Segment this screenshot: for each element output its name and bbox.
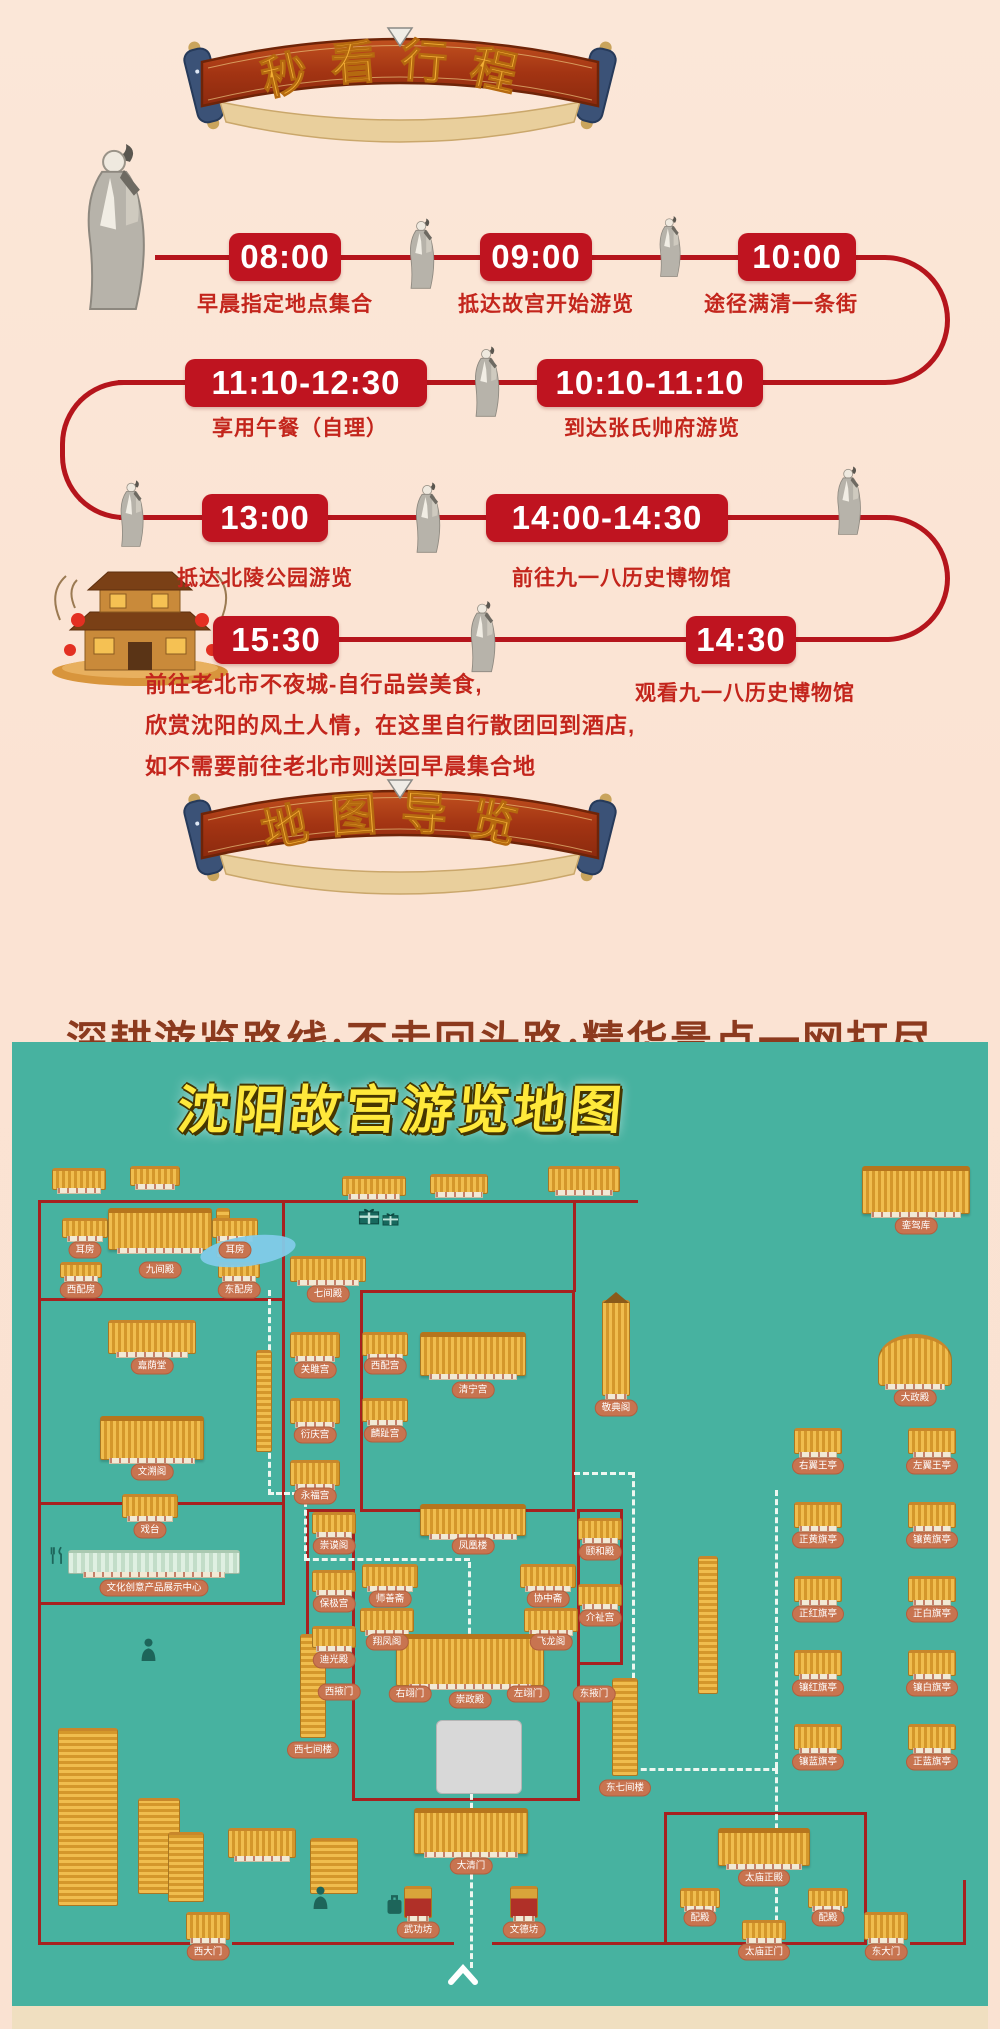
map-building: [362, 1332, 408, 1356]
palace-wall: [38, 1200, 41, 1945]
timeline-time-pill: 08:00: [229, 233, 341, 281]
map-building-label: 麟趾宫: [364, 1426, 407, 1443]
map-building-label: 正蓝旗亭: [906, 1754, 958, 1771]
map-building-label: 飞龙阁: [530, 1634, 573, 1651]
map-building: [908, 1650, 956, 1676]
map-building: [420, 1332, 526, 1376]
map-building-label: 武功坊: [397, 1922, 440, 1939]
timeline-time-pill: 15:30: [213, 616, 339, 664]
map-building-label: 永福宫: [294, 1488, 337, 1505]
palace-wall: [577, 1662, 623, 1665]
map-building: [718, 1828, 810, 1866]
map-building: [794, 1428, 842, 1454]
map-building: [602, 1300, 630, 1396]
timeline-stop-desc: 途径满清一条街: [704, 288, 858, 318]
map-building-label: 镶红旗亭: [792, 1680, 844, 1697]
gift-icon: [382, 1211, 399, 1226]
map-building: [524, 1608, 578, 1632]
map-building-label: 西配宫: [364, 1358, 407, 1375]
timeline-time-pill: 10:00: [738, 233, 856, 281]
map-building-decor: [436, 1720, 522, 1794]
itinerary-banner: 秒看行程: [150, 20, 650, 160]
timeline-stop-desc: 观看九一八历史博物馆: [635, 677, 855, 707]
palace-map: 沈阳故宫游览地图 耳房九间殿耳房西配房东配房嘉荫堂文溯阁戏台文化创意产品展示中心…: [12, 1042, 988, 2006]
final-stop-note: 前往老北市不夜城-自行品尝美食, 欣赏沈阳的风土人情，在这里自行散团回到酒店, …: [145, 664, 635, 787]
map-building-label: 翔凤阁: [366, 1634, 409, 1651]
map-building-label: 镶蓝旗亭: [792, 1754, 844, 1771]
map-building: [742, 1920, 786, 1940]
bottom-strip: [12, 2006, 988, 2029]
palace-wall: [38, 1602, 285, 1605]
map-building: [100, 1416, 204, 1460]
map-building: [360, 1608, 414, 1632]
tour-route-dashed-path: [574, 1472, 634, 1475]
map-building: [864, 1912, 908, 1940]
map-building: [794, 1650, 842, 1676]
map-building-decor: [548, 1166, 620, 1192]
map-building: [290, 1332, 340, 1358]
palace-wall: [963, 1880, 966, 1945]
map-building: [510, 1886, 538, 1918]
map-building: [62, 1218, 108, 1238]
timeline-time-pill: 09:00: [480, 233, 592, 281]
person-icon: [312, 1886, 329, 1909]
timeline-time-pill: 13:00: [202, 494, 328, 542]
map-building-label: 凤凰楼: [452, 1538, 495, 1555]
map-building-label: 右翼王亭: [792, 1458, 844, 1475]
tour-route-dashed-path: [632, 1768, 778, 1771]
map-building-label: 衍庆宫: [294, 1427, 337, 1444]
map-building-label: 七间殿: [307, 1286, 350, 1303]
timeline-stop-desc: 抵达故宫开始游览: [458, 288, 634, 318]
map-building-label: 戏台: [133, 1522, 166, 1539]
map-building: [908, 1502, 956, 1528]
map-building-label: 正黄旗亭: [792, 1532, 844, 1549]
timeline-stop-desc: 享用午餐（自理）: [212, 412, 388, 442]
map-building-label: 右翊门: [389, 1686, 432, 1703]
map-building-label: 东七间楼: [599, 1780, 651, 1797]
map-building-label: 大清门: [450, 1858, 493, 1875]
map-building-label: 配殿: [683, 1910, 716, 1927]
map-building-label: 清宁宫: [452, 1382, 495, 1399]
map-building-label: 西大门: [187, 1944, 230, 1961]
map-building: [396, 1634, 544, 1686]
tour-route-dashed-path: [304, 1558, 470, 1561]
map-building-label: 镶白旗亭: [906, 1680, 958, 1697]
map-building-label: 崇政殿: [449, 1692, 492, 1709]
scholar-figure-icon: [653, 214, 687, 278]
map-building-label: 崇谟阁: [313, 1538, 356, 1555]
luggage-icon: [386, 1894, 403, 1915]
map-building-label: 太庙正门: [738, 1944, 790, 1961]
timeline-curve-right2: [856, 515, 950, 642]
scholar-figure-icon: [468, 344, 506, 418]
map-building-label: 敬典阁: [595, 1400, 638, 1417]
timeline-time-pill: 10:10-11:10: [537, 359, 763, 407]
palace-wall: [573, 1200, 576, 1292]
palace-wall: [572, 1290, 575, 1512]
palace-wall: [492, 1942, 666, 1945]
map-building-decor: [342, 1176, 406, 1196]
map-building-label: 迪光殿: [313, 1652, 356, 1669]
palace-wall: [38, 1942, 190, 1945]
map-building-label: 銮驾库: [895, 1218, 938, 1235]
palace-wall: [910, 1942, 966, 1945]
map-building: [908, 1428, 956, 1454]
map-title: 沈阳故宫游览地图: [59, 1068, 746, 1143]
map-building-label: 师善斋: [369, 1591, 412, 1608]
map-building: [794, 1502, 842, 1528]
map-building: [420, 1504, 526, 1536]
map-building-decor: [58, 1728, 118, 1906]
gift-icon: [358, 1206, 380, 1225]
map-building-label: 镶黄旗亭: [906, 1532, 958, 1549]
palace-wall: [664, 1812, 667, 1945]
tour-route-dashed-path: [775, 1490, 778, 1768]
map-building-label: 九间殿: [139, 1262, 182, 1279]
map-building: [362, 1564, 418, 1588]
map-building: [794, 1576, 842, 1602]
map-building: [404, 1886, 432, 1918]
map-building-label: 嘉荫堂: [131, 1358, 174, 1375]
map-building-label: 文溯阁: [131, 1464, 174, 1481]
timeline-stop-desc: 早晨指定地点集合: [197, 288, 373, 318]
map-building: [108, 1320, 196, 1354]
timeline-stop-desc: 抵达北陵公园游览: [177, 562, 353, 592]
chevron-icon: [448, 1964, 478, 1985]
timeline-time-pill: 11:10-12:30: [185, 359, 427, 407]
timeline-time-pill: 14:00-14:30: [486, 494, 728, 542]
map-building: [578, 1518, 622, 1540]
map-building-label: 介祉宫: [579, 1610, 622, 1627]
map-building: [808, 1888, 848, 1908]
palace-wall: [282, 1200, 285, 1604]
map-building-decor: [228, 1828, 296, 1858]
map-building: [878, 1334, 952, 1386]
map-building: [290, 1460, 340, 1486]
palace-wall: [360, 1290, 575, 1293]
map-building-label: 保极宫: [313, 1596, 356, 1613]
map-building: [122, 1494, 178, 1518]
map-banner: 地图导览: [150, 772, 650, 912]
scholar-figure-icon: [403, 216, 441, 290]
map-building-label: 大政殿: [894, 1390, 937, 1407]
map-building: [908, 1724, 956, 1750]
map-building-label: 协中斋: [527, 1591, 570, 1608]
map-building: [290, 1256, 366, 1282]
timeline-stop-desc: 前往九一八历史博物馆: [512, 562, 732, 592]
dining-icon: [48, 1546, 67, 1565]
palace-wall: [38, 1200, 638, 1203]
map-building-label: 文化创意产品展示中心: [99, 1580, 208, 1597]
map-building-label: 太庙正殿: [738, 1870, 790, 1887]
palace-wall: [664, 1812, 867, 1815]
map-building: [908, 1576, 956, 1602]
map-building-label: 左翊门: [507, 1686, 550, 1703]
scholar-figure-icon: [410, 480, 446, 554]
map-building: [186, 1912, 230, 1940]
map-building-label: 关雎宫: [294, 1362, 337, 1379]
map-building-label: 东大门: [865, 1944, 908, 1961]
map-building-label: 西七间楼: [287, 1742, 339, 1759]
map-building: [290, 1398, 340, 1424]
map-building: [414, 1808, 528, 1854]
map-building: [794, 1724, 842, 1750]
map-building-label: 东掖门: [573, 1686, 616, 1703]
scholar-figure-icon: [112, 478, 152, 548]
map-building-decor: [430, 1174, 488, 1194]
map-building: [520, 1564, 576, 1588]
map-building: [612, 1678, 638, 1776]
map-building-label: 西配房: [60, 1282, 103, 1299]
map-building-decor: [168, 1832, 204, 1902]
map-building: [68, 1550, 240, 1574]
timeline-time-pill: 14:30: [686, 616, 796, 664]
palace-wall: [352, 1798, 580, 1801]
timeline-curve-right1: [856, 255, 950, 385]
map-building-decor: [52, 1168, 106, 1190]
palace-wall: [577, 1509, 623, 1512]
map-building-label: 正白旗亭: [906, 1606, 958, 1623]
scholar-figure-icon: [830, 464, 868, 536]
map-building: [312, 1512, 356, 1534]
poster-page: 秒看行程 前往老北市不夜城-自行品尝美食, 欣赏沈阳的风土人情，在这里自行散团: [0, 0, 1000, 2029]
map-building: [578, 1584, 622, 1606]
map-building-label: 东配房: [218, 1282, 261, 1299]
palace-wall: [232, 1942, 454, 1945]
map-building-label: 颐和殿: [579, 1544, 622, 1561]
map-building-decor: [130, 1166, 180, 1186]
map-building: [312, 1626, 356, 1648]
scholar-figure-icon: [70, 138, 162, 313]
map-building: [862, 1166, 970, 1214]
map-building: [362, 1398, 408, 1422]
scholar-figure-icon: [466, 598, 500, 674]
map-building-label: 西掖门: [318, 1684, 361, 1701]
timeline-stop-desc: 到达张氏帅府游览: [564, 412, 740, 442]
map-building: [680, 1888, 720, 1908]
banner-parchment: [220, 102, 580, 142]
map-building-label: 耳房: [218, 1242, 251, 1259]
banner-parchment: [220, 854, 580, 894]
map-building: [60, 1262, 102, 1278]
map-building-label: 耳房: [68, 1242, 101, 1259]
map-building: [312, 1570, 356, 1592]
person-icon: [140, 1638, 157, 1661]
map-building: [108, 1208, 212, 1250]
map-building-decor: [698, 1556, 718, 1694]
map-building-label: 左翼王亭: [906, 1458, 958, 1475]
map-building-label: 配殿: [811, 1910, 844, 1927]
map-building-label: 正红旗亭: [792, 1606, 844, 1623]
map-building-decor: [256, 1350, 272, 1452]
map-building-label: 文德坊: [503, 1922, 546, 1939]
